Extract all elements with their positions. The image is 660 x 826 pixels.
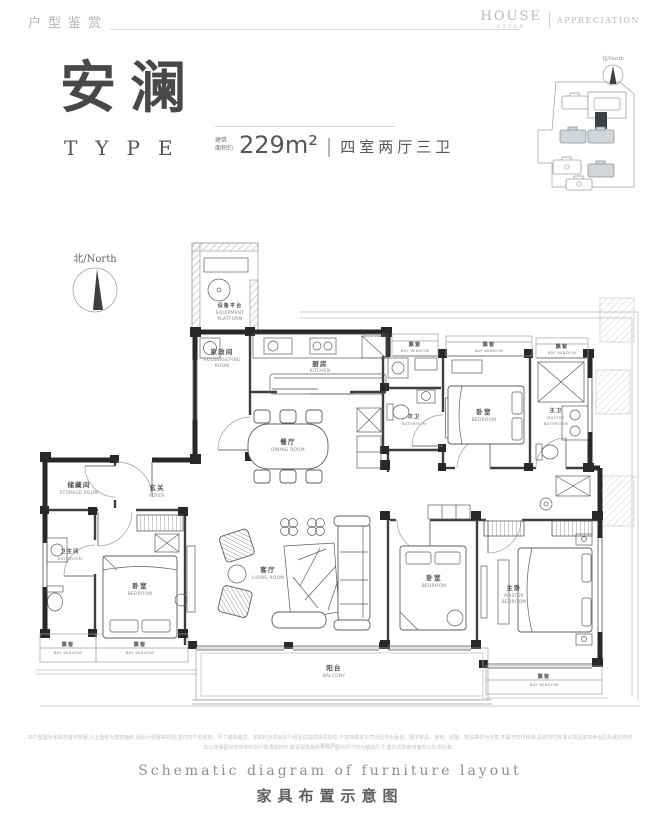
area-prefix: 建筑 面积约 [215,137,233,157]
brand-block: HOUSE STYLE APPRECIATION [481,10,640,30]
north-needle-icon [93,269,103,310]
bay-window-top-3: 飘窗 BAY WINDOW [536,338,588,358]
svg-text:厨房: 厨房 [312,359,327,368]
svg-text:主卫: 主卫 [550,406,563,414]
svg-text:客厅: 客厅 [259,565,275,574]
room-spec: 四室两厅三卫 [340,140,454,157]
svg-text:BEDROOM: BEDROOM [472,417,497,423]
kitchen-sliding-door [272,389,354,394]
svg-text:FOYER: FOYER [149,493,164,499]
svg-text:STORAGE ROOM: STORAGE ROOM [60,490,99,496]
unit-name: 安澜 [60,60,200,116]
svg-text:HOUSEKEEPING: HOUSEKEEPING [203,357,240,363]
room-laundry [388,358,437,378]
svg-text:飘窗: 飘窗 [133,641,146,648]
housekeeping-door [218,417,250,450]
title-divider-line [215,126,395,127]
floor-plan-svg: 北/North [0,0,660,826]
svg-text:ROOM: ROOM [215,363,230,369]
svg-text:BEDROOM: BEDROOM [128,591,153,597]
plant-icon [308,519,325,536]
svg-text:BEDROOM: BEDROOM [422,583,447,589]
svg-text:卧室: 卧室 [132,581,147,590]
svg-text:卧室: 卧室 [426,573,441,582]
svg-text:飘窗: 飘窗 [61,641,74,648]
svg-text:阳台: 阳台 [326,663,341,672]
svg-text:飘窗: 飘窗 [408,341,421,348]
svg-text:DINING ROOM: DINING ROOM [271,447,305,453]
room-guest-bathroom: 次卫 BATHROOM [387,390,435,426]
svg-text:MASTER: MASTER [547,415,565,420]
site-plan-highlighted-building [588,92,626,129]
svg-text:PLATFORM: PLATFORM [217,316,242,322]
bedroom1-door [98,512,132,546]
svg-text:BAY WINDOW: BAY WINDOW [548,350,577,355]
caption-chinese: 家具布置示意图 [0,785,660,806]
room-equipment-platform: 设备平台 EQUIPMENT PLATFORM [192,243,258,332]
svg-text:飘窗: 飘窗 [555,343,568,350]
room-kitchen: 厨房 KITCHEN [253,334,388,394]
spec-separator: | [324,137,334,157]
bay-window-bottom-left-1: 飘窗 BAY WINDOW [40,634,96,662]
unit-type-label: TYPE [64,138,191,158]
svg-text:KITCHEN: KITCHEN [310,368,331,374]
room-storage: 储藏间 STORAGE ROOM [60,480,99,496]
svg-text:BEDROOM: BEDROOM [502,599,527,605]
brand-word-house: HOUSE [481,10,542,23]
eave-lines [36,298,640,706]
svg-text:BAY WINDOW: BAY WINDOW [54,650,83,655]
room-bedroom1: 卧室 BEDROOM [103,515,187,638]
site-plan-buildings [553,92,626,190]
room-living: 客厅 LIVING ROOM [187,516,370,630]
brand-word-appreciation: APPRECIATION [557,16,640,25]
svg-text:设备平台: 设备平台 [218,302,243,309]
svg-text:卫生间: 卫生间 [60,547,79,555]
unit-spec-row: 建筑 面积约 229m² | 四室两厅三卫 [215,133,454,157]
room-dining: 餐厅 DINING ROOM [248,408,381,483]
svg-text:玄关: 玄关 [149,483,164,492]
svg-text:飘窗: 飘窗 [537,673,550,680]
area-value: 229m² [239,133,318,157]
svg-text:BAY WINDOW: BAY WINDOW [475,348,504,353]
svg-text:飘窗: 飘窗 [482,341,495,348]
svg-text:BATHROOM: BATHROOM [402,421,426,426]
site-plan: 北/North [538,55,634,190]
room-bathroom1: 卫生间 BATHROOM [47,538,82,611]
master-bathroom-door [536,438,566,468]
entry-door [117,462,152,497]
brand-divider [549,12,550,28]
svg-text:次卫: 次卫 [408,412,421,420]
room-bedroom2: 卧室 BEDROOM [446,360,525,444]
disclaimer-line-2: 本公司保留对宣传资料进行修改的权利,敬请留意最新资料。图中尺寸均为轴线尺寸,套内… [26,744,633,752]
bay-window-bottom-right: 飘窗 BAY WINDOW [486,666,602,694]
svg-text:EQUIPMENT: EQUIPMENT [216,310,244,316]
svg-text:BALCONY: BALCONY [323,673,346,679]
svg-text:主卧: 主卧 [506,583,521,592]
svg-text:MASTER: MASTER [504,593,524,599]
plant-icon [281,519,298,536]
north-compass-label: 北/North [73,253,117,265]
svg-text:储藏间: 储藏间 [66,480,90,489]
site-plan-north-label: 北/North [602,55,624,62]
site-plan-north-icon: 北/North [602,55,624,85]
svg-text:BATHROOM: BATHROOM [58,556,82,561]
svg-text:餐厅: 餐厅 [279,437,295,446]
room-bedroom3: 卧室 BEDROOM [400,505,470,630]
north-compass: 北/North [73,253,117,312]
balcony: 阳台 BALCONY [192,648,492,704]
hallway-cabinet [540,476,590,510]
floor-plan-page: 北/North [0,0,660,826]
svg-text:家政间: 家政间 [210,347,233,356]
header-rule [110,29,520,30]
room-foyer: 玄关 FOYER [149,483,164,499]
page-eyebrow: 户型鉴赏 [28,12,108,31]
room-housekeeping: 家政间 HOUSEKEEPING ROOM [200,338,241,369]
room-master-bedroom: 主卧 MASTER BEDROOM [481,521,592,645]
caption-english: Schematic diagram of furniture layout [0,763,660,779]
svg-text:卧室: 卧室 [476,407,491,416]
bay-window-top-1: 飘窗 BAY WINDOW [392,334,438,356]
svg-text:BAY WINDOW: BAY WINDOW [530,682,559,687]
svg-text:BAY WINDOW: BAY WINDOW [126,650,155,655]
svg-text:LIVING ROOM: LIVING ROOM [252,575,285,581]
svg-text:BAY WINDOW: BAY WINDOW [401,348,430,353]
room-master-bathroom: 主卫 MASTER BATHROOM [536,362,588,460]
brand-word-style: STYLE [496,25,526,30]
svg-text:BATHROOM: BATHROOM [544,421,568,426]
bay-window-top-2: 飘窗 BAY WINDOW [446,336,532,356]
